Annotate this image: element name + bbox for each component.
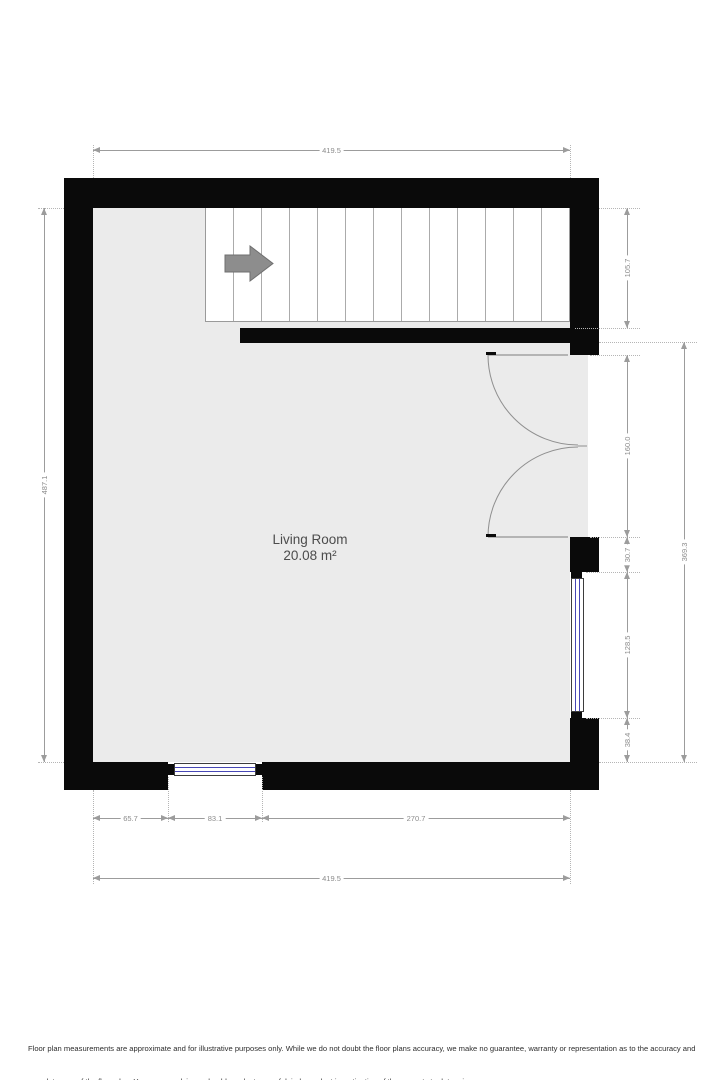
dim-bottom-window-width: 83.1 — [168, 818, 262, 819]
room-label: Living Room 20.08 m² — [225, 532, 395, 564]
dim-label: 30.7 — [624, 544, 632, 565]
extension-line — [93, 790, 94, 884]
dim-right-total: 369.3 — [684, 342, 685, 762]
dim-label: 83.1 — [205, 815, 226, 823]
dim-label: 105.7 — [624, 256, 632, 281]
window-cap — [256, 764, 262, 775]
window-glass — [571, 578, 584, 712]
dim-label: 160.0 — [624, 434, 632, 459]
extension-line — [575, 328, 640, 329]
dim-label: 128.5 — [624, 633, 632, 658]
dim-bottom-left-wall: 65.7 — [93, 818, 168, 819]
dim-left-height: 487.1 — [44, 208, 45, 762]
dim-label: 270.7 — [404, 815, 429, 823]
double-door-swing — [486, 352, 587, 537]
dim-top-width: 419.5 — [93, 150, 570, 151]
stair-direction-arrow-icon — [225, 246, 273, 281]
disclaimer-text: Floor plan measurements are approximate … — [28, 1021, 704, 1080]
window-right — [571, 572, 584, 718]
extension-line — [586, 572, 640, 573]
room-name: Living Room — [225, 532, 395, 548]
window-cap — [571, 712, 582, 718]
extension-line — [590, 537, 640, 538]
window-bottom — [168, 763, 262, 776]
extension-line — [599, 208, 640, 209]
dim-bottom-right-wall: 270.7 — [262, 818, 570, 819]
extension-line — [599, 762, 697, 763]
extension-line — [570, 145, 571, 178]
dim-stair-depth: 105.7 — [627, 208, 628, 328]
extension-line — [590, 355, 640, 356]
dim-door-opening: 160.0 — [627, 355, 628, 537]
disclaimer-line: Floor plan measurements are approximate … — [28, 1043, 704, 1054]
dim-window-to-corner: 38.4 — [627, 718, 628, 762]
room-area: 20.08 m² — [225, 548, 395, 564]
disclaimer-line: completeness of the floor plan. You or y… — [28, 1076, 704, 1080]
window-pane — [175, 767, 255, 768]
dim-window-height: 128.5 — [627, 572, 628, 718]
extension-line — [586, 718, 640, 719]
window-pane — [575, 579, 576, 711]
extension-line — [38, 762, 64, 763]
dim-label: 419.5 — [319, 147, 344, 155]
dim-door-to-window: 30.7 — [627, 537, 628, 572]
dim-label: 65.7 — [120, 815, 141, 823]
floor-plan-page: Living Room 20.08 m² 419.5 487.1 105.7 1… — [0, 0, 720, 1080]
window-glass — [174, 763, 256, 776]
dim-label: 369.3 — [681, 540, 689, 565]
dim-label: 487.1 — [41, 473, 49, 498]
extension-line — [570, 790, 571, 884]
window-pane — [175, 771, 255, 772]
dim-label: 419.5 — [319, 875, 344, 883]
dim-bottom-total: 419.5 — [93, 878, 570, 879]
dim-label: 38.4 — [624, 730, 632, 751]
window-pane — [579, 579, 580, 711]
